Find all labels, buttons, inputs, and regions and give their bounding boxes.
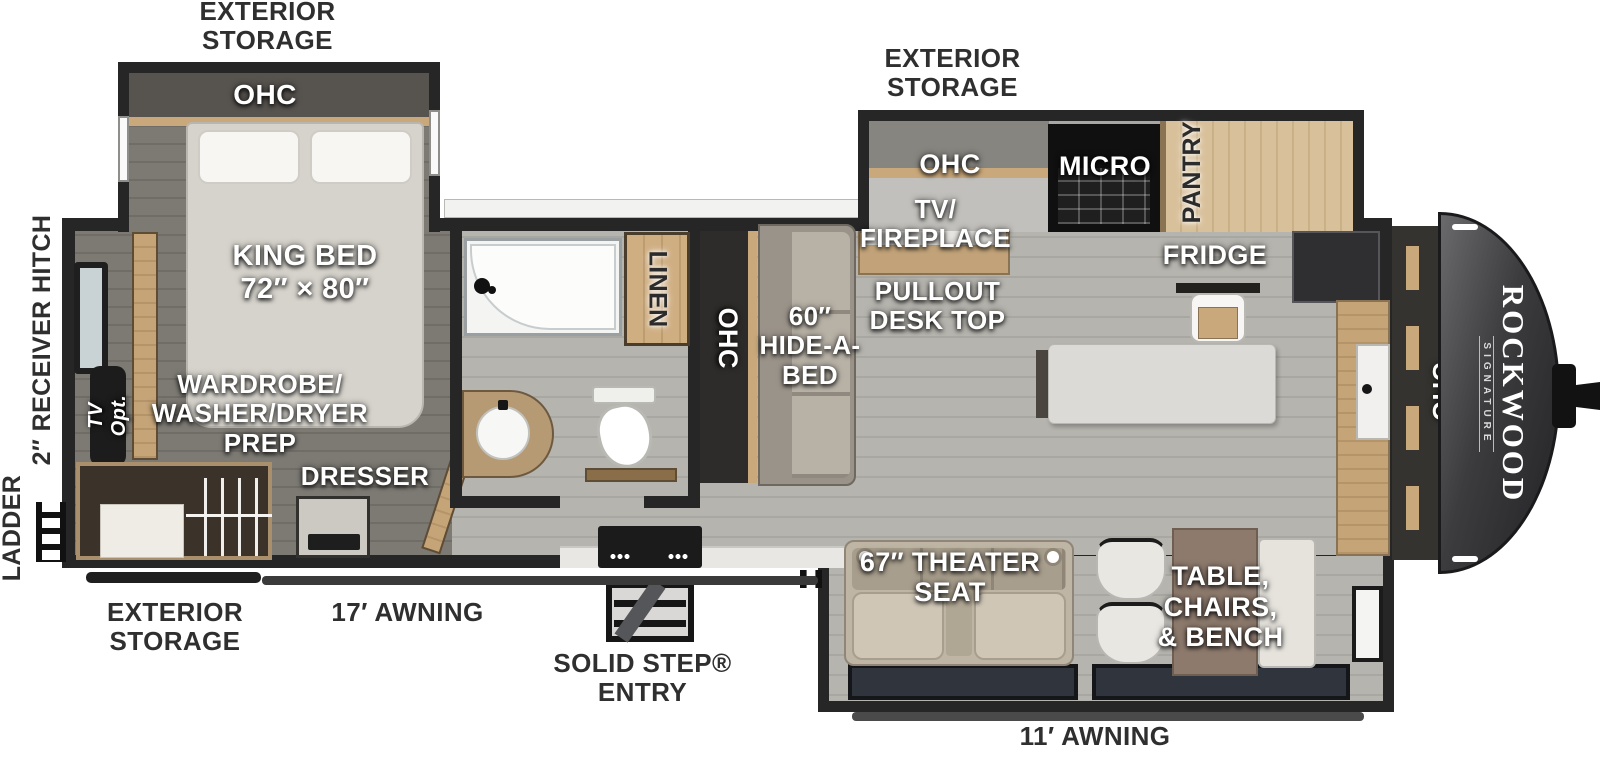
fridge-label: FRIDGE <box>1150 240 1280 270</box>
awning-rail-front <box>852 712 1364 721</box>
hitch-arm <box>1566 382 1600 410</box>
bedroom-ohc-label: OHC <box>215 78 315 112</box>
awning-11-label: 11′ AWNING <box>1000 722 1190 752</box>
entry-door-hinge-left <box>610 554 630 559</box>
dresser-tv <box>308 534 360 550</box>
kitchen-island <box>1048 344 1276 424</box>
island-sink-ledge <box>1176 283 1260 293</box>
pantry-label-box: PANTRY <box>1132 158 1252 186</box>
ladder-label: LADDER <box>0 448 24 608</box>
table-chairs-label: TABLE, CHAIRS, & BENCH <box>1128 562 1313 652</box>
tv-opt-label: TV Opt. <box>85 395 130 437</box>
slide-end-window <box>1352 586 1383 662</box>
cap-marker-light-bottom <box>1452 556 1478 562</box>
pullout-desk-label: PULLOUT DESK TOP <box>850 276 1025 336</box>
front-ohc-mullion-4 <box>1406 486 1419 530</box>
cap-marker-light-top <box>1452 224 1478 230</box>
island-cutting-board <box>1198 307 1238 339</box>
receiver-hitch-label: 2″ RECEIVER HITCH <box>28 205 56 475</box>
awning-rail-rear <box>262 576 818 585</box>
front-ohc-mullion-1 <box>1406 246 1419 290</box>
linen-label: LINEN <box>643 251 671 328</box>
slide-floor-window-left <box>848 664 1078 700</box>
front-faucet <box>1362 384 1372 394</box>
shower-head-icon <box>474 278 490 294</box>
slide-flange <box>444 199 860 218</box>
exterior-storage-door-bar <box>86 572 261 583</box>
tv-fireplace-label: TV/ FIREPLACE <box>848 196 1023 252</box>
wardrobe-label: WARDROBE/ WASHER/DRYER PREP <box>145 372 375 456</box>
awning-17-label: 17′ AWNING <box>320 598 495 628</box>
bedroom-slide-window-right <box>429 110 440 176</box>
floorplan-canvas: TV Opt. LINEN OHC <box>0 0 1600 758</box>
exterior-storage-label-top-right: EXTERIOR STORAGE <box>845 46 1060 100</box>
bath-sink <box>476 406 530 460</box>
exterior-storage-label-top-left: EXTERIOR STORAGE <box>160 0 375 52</box>
front-sink <box>1356 344 1390 440</box>
solid-step-entry-label: SOLID STEP® ENTRY <box>550 650 735 706</box>
bath-wall-bottom-left <box>450 496 560 508</box>
theater-seat-label: 67″ THEATER SEAT <box>845 548 1055 606</box>
king-bed-pillow-left <box>198 130 300 184</box>
dresser-label: DRESSER <box>290 462 440 492</box>
front-ohc-mullion-2 <box>1406 326 1419 370</box>
brand-logo-box: ROCKWOOD SIGNATURE <box>1473 254 1537 534</box>
bath-wall-left <box>450 231 462 508</box>
wardrobe-rod <box>186 514 272 517</box>
exterior-storage-label-bottom-left: EXTERIOR STORAGE <box>60 598 290 656</box>
ladder-icon <box>36 502 66 562</box>
entry-door-hinge-right <box>668 554 688 559</box>
washer-dryer-space <box>100 504 184 558</box>
entry-door-panel <box>598 526 702 568</box>
bath-faucet <box>498 400 508 410</box>
wardrobe-hangers <box>190 478 268 556</box>
bedroom-slide-window-left <box>118 116 129 182</box>
brand-sub: SIGNATURE <box>1479 336 1494 451</box>
toilet-tank <box>592 386 656 404</box>
tv-opt-badge: TV Opt. <box>90 366 126 466</box>
hall-ohc-label: OHC <box>713 307 744 368</box>
king-bed-pillow-right <box>310 130 412 184</box>
kitchen-ohc-label: OHC <box>900 148 1000 180</box>
bath-shelf <box>585 468 677 482</box>
bedroom-window <box>74 262 108 374</box>
fridge <box>1292 231 1380 303</box>
brand-name: ROCKWOOD <box>1496 285 1531 504</box>
pantry-label: PANTRY <box>1178 121 1206 223</box>
bath-wall-bottom-right <box>644 496 700 508</box>
front-ohc-mullion-3 <box>1406 406 1419 450</box>
king-bed-label: KING BED 72″ × 80″ <box>210 238 400 308</box>
